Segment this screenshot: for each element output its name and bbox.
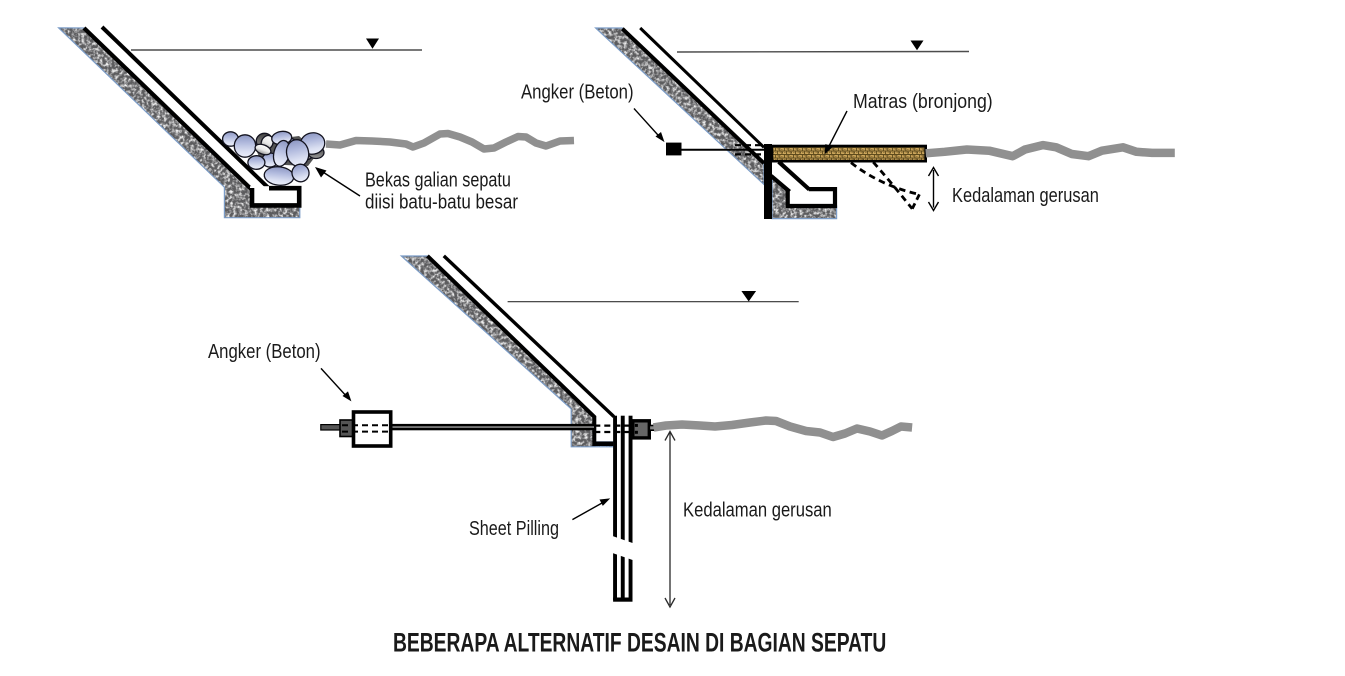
svg-text:Angker (Beton): Angker (Beton)	[521, 80, 634, 103]
svg-text:Angker (Beton): Angker (Beton)	[208, 340, 321, 363]
svg-text:Sheet Pilling: Sheet Pilling	[469, 518, 559, 540]
svg-text:Bekas galian sepatu: Bekas galian sepatu	[365, 169, 511, 191]
svg-text:BEBERAPA ALTERNATIF DESAIN DI: BEBERAPA ALTERNATIF DESAIN DI BAGIAN SEP…	[393, 627, 886, 657]
svg-text:Kedalaman gerusan: Kedalaman gerusan	[683, 498, 832, 521]
svg-text:Kedalaman gerusan: Kedalaman gerusan	[952, 183, 1099, 206]
svg-text:diisi batu-batu besar: diisi batu-batu besar	[365, 190, 518, 213]
svg-text:Matras (bronjong): Matras (bronjong)	[853, 91, 993, 113]
